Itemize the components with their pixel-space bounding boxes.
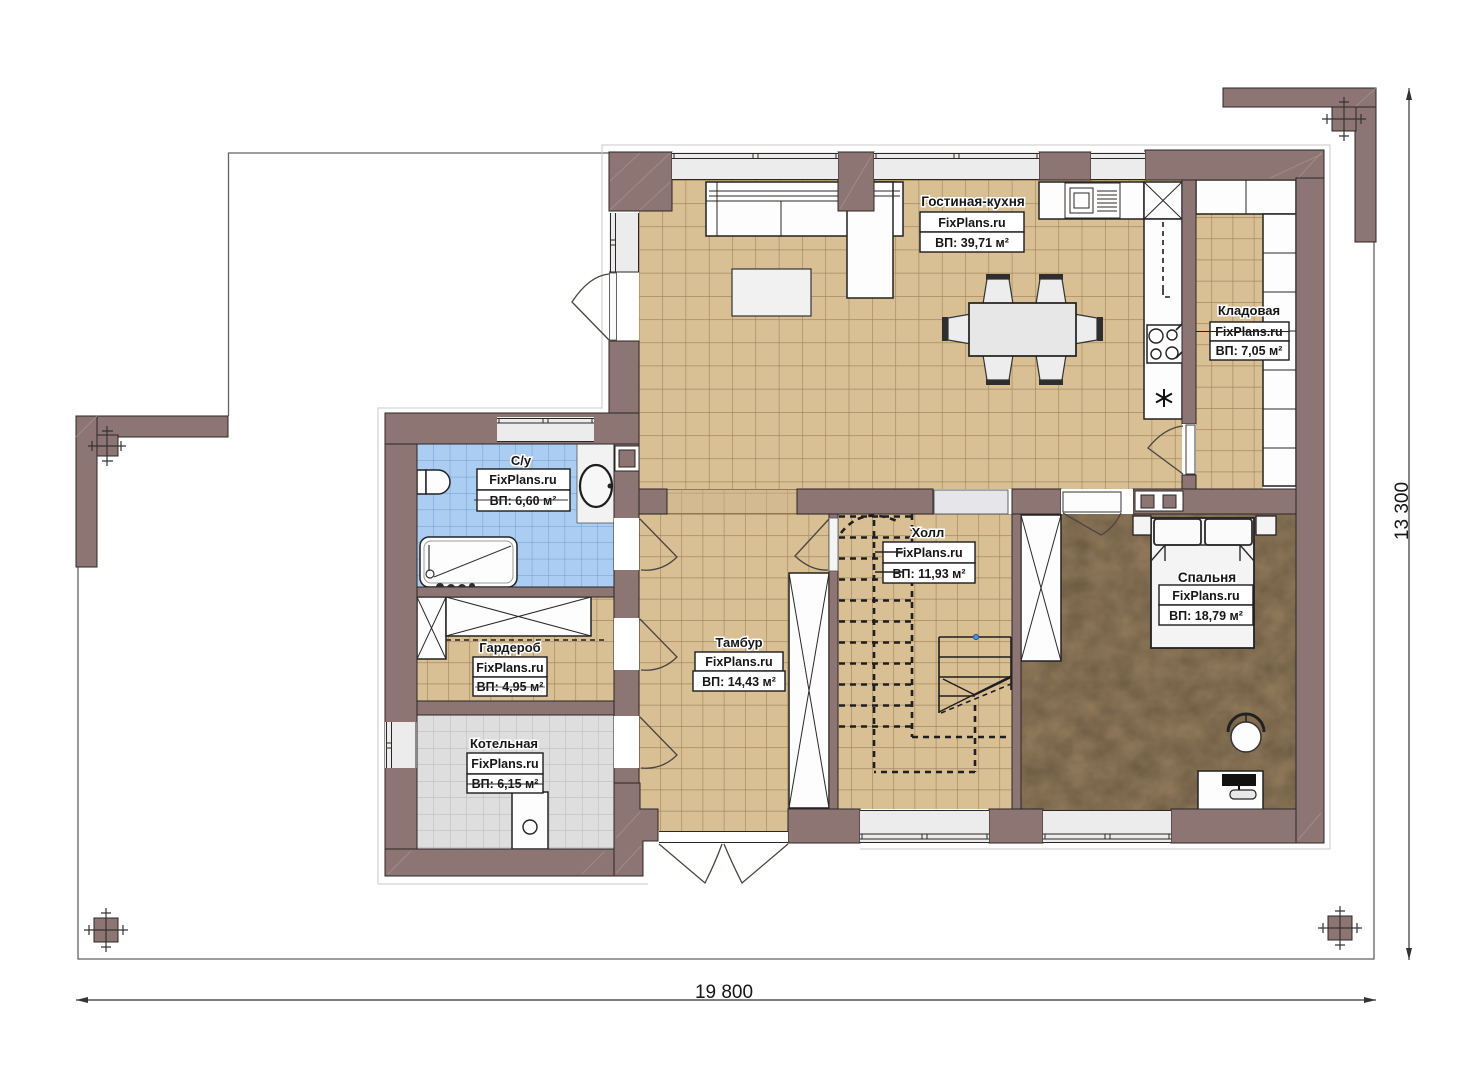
svg-text:FixPlans.ru: FixPlans.ru xyxy=(705,655,772,669)
svg-text:ВП: 14,43 м²: ВП: 14,43 м² xyxy=(702,675,776,689)
svg-text:ВП: 6,60 м²: ВП: 6,60 м² xyxy=(490,494,557,508)
svg-text:Спальня: Спальня xyxy=(1178,570,1236,585)
svg-text:ВП: 7,05 м²: ВП: 7,05 м² xyxy=(1216,344,1283,358)
svg-text:19 800: 19 800 xyxy=(695,982,753,1003)
svg-text:ВП: 11,93 м²: ВП: 11,93 м² xyxy=(892,567,965,581)
svg-text:FixPlans.ru: FixPlans.ru xyxy=(471,757,538,771)
svg-text:FixPlans.ru: FixPlans.ru xyxy=(895,546,962,560)
svg-text:FixPlans.ru: FixPlans.ru xyxy=(938,216,1005,230)
svg-text:ВП: 39,71 м²: ВП: 39,71 м² xyxy=(935,236,1009,250)
svg-text:FixPlans.ru: FixPlans.ru xyxy=(1172,589,1239,603)
svg-text:Гардероб: Гардероб xyxy=(479,640,540,655)
svg-text:Гостиная-кухня: Гостиная-кухня xyxy=(921,194,1024,209)
svg-text:С/у: С/у xyxy=(511,453,532,468)
svg-text:FixPlans.ru: FixPlans.ru xyxy=(489,473,556,487)
svg-text:FixPlans.ru: FixPlans.ru xyxy=(476,661,543,675)
svg-text:ВП: 18,79 м²: ВП: 18,79 м² xyxy=(1169,609,1243,623)
svg-text:Тамбур: Тамбур xyxy=(715,635,762,650)
svg-text:Котельная: Котельная xyxy=(470,736,538,751)
svg-text:Кладовая: Кладовая xyxy=(1218,303,1280,318)
svg-text:Холл: Холл xyxy=(912,525,945,540)
svg-text:13 300: 13 300 xyxy=(1392,482,1413,540)
